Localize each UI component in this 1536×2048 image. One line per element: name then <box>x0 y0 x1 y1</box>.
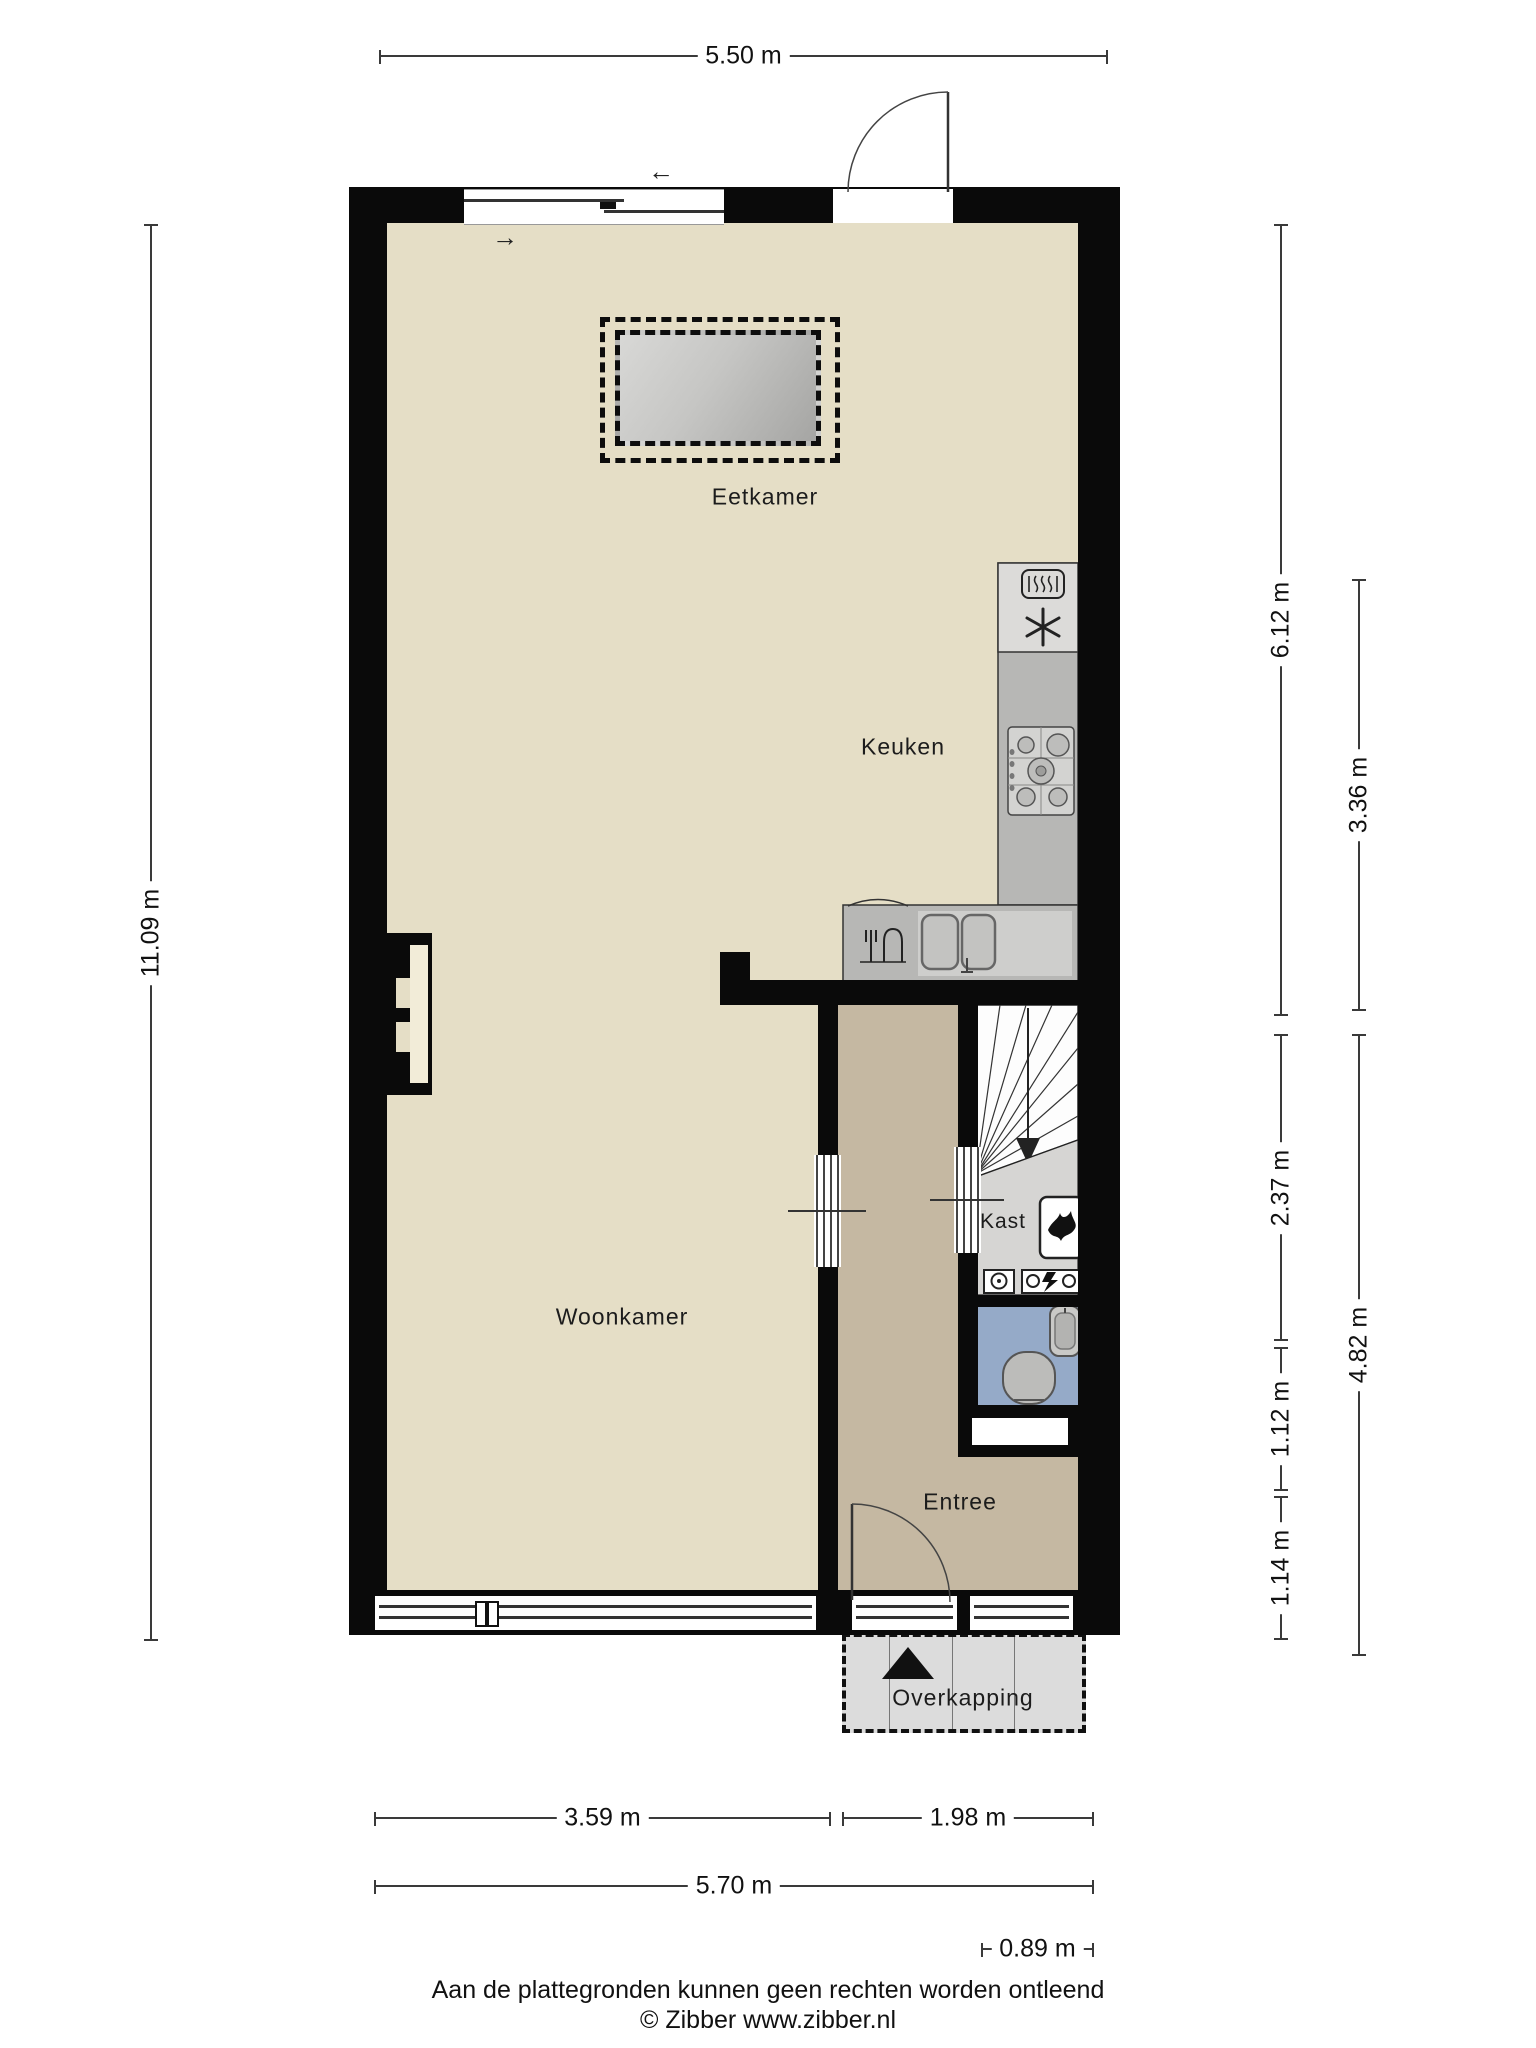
floorplan-page: 5.50 m 11.09 m 6.12 m 2.37 m 1.12 m 1.14… <box>0 0 1536 2048</box>
dim-bottom-0-89: 0.89 m <box>982 1948 1093 1950</box>
room-label-overkapping: Overkapping <box>892 1685 1033 1712</box>
overkapping-area <box>842 1633 1086 1733</box>
chimney-slot <box>410 945 428 1083</box>
dim-left-label: 11.09 m <box>136 880 167 984</box>
chimney-notch <box>396 1022 410 1052</box>
sliding-window-handle <box>600 202 616 209</box>
sink-icon <box>922 915 995 972</box>
room-label-woonkamer: Woonkamer <box>556 1304 689 1331</box>
kitchen-hall-wall-stub <box>720 952 750 1005</box>
oven-freezer-block <box>998 563 1078 652</box>
hall-left-glazing-mark <box>788 1210 866 1212</box>
window-mullion <box>475 1601 487 1627</box>
dim-right-1-14: 1.14 m <box>1280 1497 1282 1639</box>
toilet-door-opening <box>972 1418 1068 1445</box>
water-meter-icon <box>984 1270 1014 1293</box>
dim-right-3-36: 3.36 m <box>1358 580 1360 1010</box>
room-label-entree: Entree <box>923 1489 997 1516</box>
electricity-meter-icon <box>1022 1270 1080 1293</box>
back-door <box>840 86 955 198</box>
hall-left-wall <box>818 997 838 1597</box>
right-wall <box>1078 187 1120 1635</box>
dim-bottom-3-59: 3.59 m <box>375 1817 830 1819</box>
slide-right-arrow-icon: → <box>492 224 518 250</box>
toilet-icon <box>1003 1352 1055 1404</box>
disclaimer-text: Aan de plattegronden kunnen geen rechten… <box>0 1976 1536 2005</box>
dim-right-1-12: 1.12 m <box>1280 1348 1282 1490</box>
kitchen-hall-wall <box>723 980 1078 1005</box>
boiler-icon <box>1040 1197 1083 1258</box>
dim-bottom-1-98: 1.98 m <box>843 1817 1093 1819</box>
window-mullion <box>487 1601 499 1627</box>
entree-side-window <box>970 1596 1073 1630</box>
room-label-keuken: Keuken <box>861 734 945 761</box>
dim-top: 5.50 m <box>380 55 1107 57</box>
room-label-kast: Kast <box>980 1210 1026 1234</box>
entrance-triangle-icon <box>882 1647 934 1679</box>
slide-left-arrow-icon: ← <box>648 158 674 184</box>
canopy-post-line <box>952 1637 953 1729</box>
kitchen-counter <box>840 555 1082 987</box>
void-inset <box>615 330 821 446</box>
left-wall <box>349 187 387 1635</box>
copyright-text: © Zibber www.zibber.nl <box>0 2006 1536 2035</box>
dim-left: 11.09 m <box>150 225 152 1640</box>
stove-icon <box>1008 727 1074 815</box>
void-dashed-outline <box>600 317 840 463</box>
hand-basin-icon <box>1050 1306 1080 1356</box>
living-room-window <box>375 1596 816 1630</box>
hall-right-glazing-mark <box>930 1199 1004 1201</box>
chimney-notch <box>396 978 410 1008</box>
dim-right-4-82: 4.82 m <box>1358 1035 1360 1655</box>
dim-right-2-37: 2.37 m <box>1280 1035 1282 1340</box>
dim-top-label: 5.50 m <box>697 41 789 72</box>
dim-bottom-5-70: 5.70 m <box>375 1885 1093 1887</box>
front-door-arc <box>852 1504 950 1602</box>
toilet-top-wall <box>958 1295 1078 1307</box>
canopy-post-line <box>1014 1637 1015 1729</box>
dim-right-6-12: 6.12 m <box>1280 225 1282 1015</box>
sliding-window <box>464 189 724 225</box>
back-door-arc <box>848 92 948 192</box>
room-label-eetkamer: Eetkamer <box>712 484 818 511</box>
